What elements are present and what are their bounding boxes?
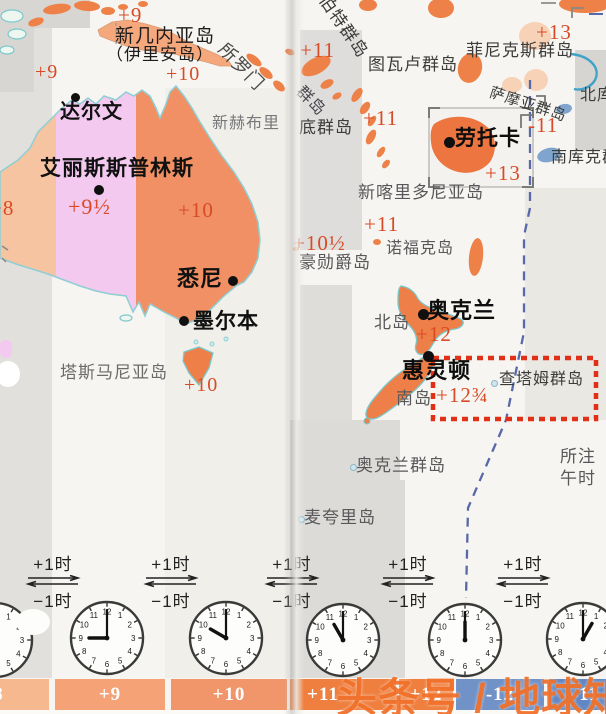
svg-text:4: 4 bbox=[128, 647, 133, 656]
double-arrow-icon bbox=[380, 575, 436, 588]
zone-bar-segment-+10: +10 bbox=[171, 679, 287, 710]
watermark: 头条号 / 地球知识局 bbox=[336, 664, 606, 714]
zone-bar-label: +9 bbox=[99, 684, 121, 706]
clock-9: 121234567891011 bbox=[68, 599, 146, 682]
svg-text:6: 6 bbox=[105, 660, 110, 669]
map-label: +13 bbox=[536, 22, 572, 43]
svg-text:10: 10 bbox=[438, 623, 447, 632]
plus-one-hour: +1时 bbox=[260, 556, 324, 575]
map-label: +10 bbox=[184, 375, 218, 395]
map-label: 奥克兰 bbox=[427, 300, 496, 322]
svg-text:10: 10 bbox=[556, 622, 565, 631]
svg-text:11: 11 bbox=[90, 611, 99, 620]
minus-one-hour: −1时 bbox=[260, 593, 324, 612]
svg-text:4: 4 bbox=[486, 649, 491, 658]
minus-one-hour: −1时 bbox=[376, 593, 440, 612]
zone-bar-label: +11 bbox=[307, 684, 339, 706]
island-marker bbox=[350, 464, 357, 471]
map-label: 新赫布里 bbox=[212, 116, 280, 132]
map-label: 午时 bbox=[560, 470, 596, 487]
map-label: （伊里安岛） bbox=[106, 46, 214, 63]
map-label: 麦夸里岛 bbox=[304, 509, 376, 526]
svg-text:4: 4 bbox=[16, 649, 21, 658]
svg-text:2: 2 bbox=[364, 623, 369, 632]
map-label: +9 bbox=[118, 5, 142, 26]
svg-text:11: 11 bbox=[566, 612, 575, 621]
plus-one-hour: +1时 bbox=[139, 556, 203, 575]
map-label: 塔斯马尼亚岛 bbox=[60, 364, 168, 381]
map-label: 奥克兰群岛 bbox=[356, 457, 446, 474]
zone-bar-label: +8 bbox=[0, 684, 4, 706]
map-label: 图瓦卢群岛 bbox=[368, 56, 458, 73]
svg-text:3: 3 bbox=[489, 636, 494, 645]
map-label: 新几内亚岛 bbox=[115, 27, 215, 46]
svg-text:3: 3 bbox=[131, 634, 136, 643]
plus-one-hour: +1时 bbox=[21, 556, 85, 575]
svg-text:1: 1 bbox=[476, 613, 481, 622]
svg-text:9: 9 bbox=[554, 635, 559, 644]
city-dot bbox=[444, 137, 455, 148]
svg-text:6: 6 bbox=[224, 660, 229, 669]
hour-shift-label: +1时−1时 bbox=[376, 556, 440, 611]
svg-text:11: 11 bbox=[448, 613, 457, 622]
map-label: 南岛 bbox=[396, 390, 432, 407]
svg-text:9: 9 bbox=[197, 634, 202, 643]
minus-one-hour: −1时 bbox=[21, 593, 85, 612]
svg-text:7: 7 bbox=[211, 657, 216, 666]
zone-bar-segment-+8: +8 bbox=[0, 679, 49, 710]
island-marker bbox=[298, 516, 305, 523]
map-label: +11 bbox=[363, 108, 398, 129]
hour-shift-label: +1时−1时 bbox=[21, 556, 85, 611]
map-label: +13 bbox=[485, 163, 521, 184]
double-arrow-icon bbox=[143, 575, 199, 588]
map-label: +10 bbox=[166, 64, 200, 84]
svg-text:2: 2 bbox=[486, 623, 491, 632]
svg-text:2: 2 bbox=[128, 621, 133, 630]
map-label: 新喀里多尼亚岛 bbox=[358, 184, 484, 201]
map-label: +12¾ bbox=[436, 385, 489, 406]
map-label: +9½ bbox=[68, 196, 111, 218]
map-label: +12 bbox=[416, 324, 452, 345]
map-label: 悉尼 bbox=[177, 268, 223, 290]
svg-text:1: 1 bbox=[237, 611, 242, 620]
map-label: 底群岛 bbox=[299, 119, 353, 136]
map-label: 惠灵顿 bbox=[402, 360, 471, 382]
map-label: 北岛 bbox=[374, 314, 410, 331]
svg-text:10: 10 bbox=[80, 621, 89, 630]
map-label: +8 bbox=[0, 198, 14, 219]
svg-text:3: 3 bbox=[20, 636, 25, 645]
svg-text:1: 1 bbox=[354, 613, 359, 622]
svg-text:11: 11 bbox=[209, 611, 218, 620]
svg-text:5: 5 bbox=[118, 657, 123, 666]
map-label: -11 bbox=[528, 115, 558, 136]
map-label: +11 bbox=[300, 40, 335, 61]
double-arrow-icon bbox=[495, 575, 551, 588]
map-label: 艾丽斯斯普林斯 bbox=[40, 158, 194, 179]
zone-bar-label: +10 bbox=[213, 684, 246, 706]
plus-one-hour: +1时 bbox=[376, 556, 440, 575]
svg-text:9: 9 bbox=[314, 636, 319, 645]
city-dot bbox=[94, 185, 104, 195]
plus-one-hour: +1时 bbox=[491, 556, 555, 575]
map-label: +11 bbox=[364, 214, 399, 235]
map-label: 诺福克岛 bbox=[386, 241, 454, 257]
map-label: 豪勋爵岛 bbox=[299, 254, 371, 271]
tiny-island-marks bbox=[2, 246, 8, 262]
city-dot bbox=[418, 309, 429, 320]
svg-text:8: 8 bbox=[440, 649, 445, 658]
svg-text:5: 5 bbox=[6, 659, 11, 668]
map-label: +10 bbox=[178, 200, 214, 221]
svg-text:8: 8 bbox=[201, 647, 206, 656]
zone-bar-segment-+9: +9 bbox=[55, 679, 165, 710]
clock-8: 121234567891011 bbox=[0, 600, 35, 685]
hour-shift-label: +1时−1时 bbox=[491, 556, 555, 611]
timezone-map-page: +9新几内亚岛（伊里安岛）所罗门+9+10达尔文新赫布里艾丽斯斯普林斯+8+9½… bbox=[0, 0, 606, 714]
city-dot bbox=[71, 93, 80, 102]
map-label: 达尔文 bbox=[60, 102, 123, 122]
corner-bracket bbox=[572, 8, 584, 18]
svg-text:10: 10 bbox=[316, 623, 325, 632]
map-label: 南库克群岛 bbox=[551, 150, 606, 166]
svg-text:9: 9 bbox=[436, 636, 441, 645]
map-label: 墨尔本 bbox=[193, 311, 259, 332]
city-dot bbox=[179, 316, 189, 326]
international-date-line bbox=[466, 80, 530, 598]
route-arrow-line bbox=[571, 54, 597, 90]
map-label: 劳托卡 bbox=[455, 128, 521, 149]
svg-text:8: 8 bbox=[318, 649, 323, 658]
svg-text:8: 8 bbox=[82, 647, 87, 656]
svg-text:8: 8 bbox=[558, 648, 563, 657]
hour-shift-label: +1时−1时 bbox=[260, 556, 324, 611]
svg-text:5: 5 bbox=[237, 657, 242, 666]
city-dot bbox=[228, 276, 238, 286]
svg-text:3: 3 bbox=[250, 634, 255, 643]
map-label: 菲尼克斯群岛 bbox=[466, 42, 574, 59]
svg-text:1: 1 bbox=[594, 612, 599, 621]
svg-text:2: 2 bbox=[16, 622, 21, 631]
svg-text:4: 4 bbox=[247, 647, 252, 656]
svg-text:9: 9 bbox=[78, 634, 83, 643]
svg-text:1: 1 bbox=[118, 611, 123, 620]
city-dot bbox=[423, 351, 434, 362]
svg-text:4: 4 bbox=[364, 649, 369, 658]
map-label: 所注 bbox=[560, 448, 596, 465]
map-label: +10½ bbox=[293, 233, 346, 254]
minus-one-hour: −1时 bbox=[139, 593, 203, 612]
svg-text:3: 3 bbox=[367, 636, 372, 645]
map-label: 北库克群岛 bbox=[580, 88, 606, 104]
map-label: +9 bbox=[35, 62, 58, 82]
map-label: 查塔姆群岛 bbox=[499, 372, 584, 388]
hour-shift-label: +1时−1时 bbox=[139, 556, 203, 611]
island-marker bbox=[491, 380, 498, 387]
svg-text:10: 10 bbox=[199, 621, 208, 630]
svg-text:2: 2 bbox=[247, 621, 252, 630]
svg-text:7: 7 bbox=[328, 659, 333, 668]
svg-text:7: 7 bbox=[92, 657, 97, 666]
svg-text:11: 11 bbox=[326, 613, 335, 622]
svg-text:1: 1 bbox=[6, 612, 11, 621]
clock-10: 121234567891011 bbox=[187, 599, 265, 682]
double-arrow-icon bbox=[25, 575, 81, 588]
double-arrow-icon bbox=[264, 575, 320, 588]
minus-one-hour: −1时 bbox=[491, 593, 555, 612]
